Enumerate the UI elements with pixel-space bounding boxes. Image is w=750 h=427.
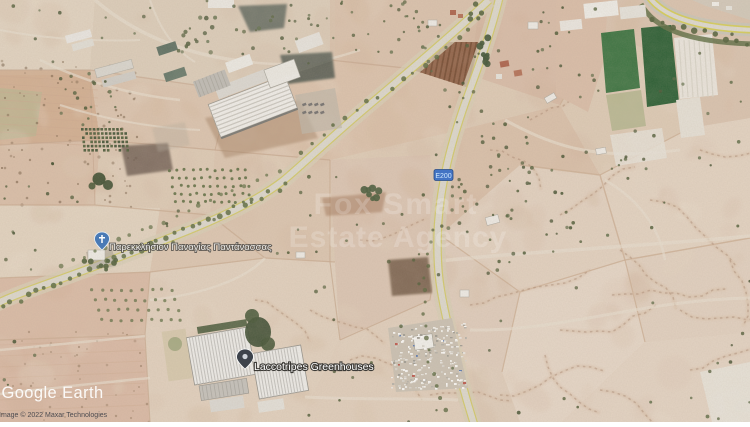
svg-text:Παρεκκλήσιον Παναγίας Παντάνασ: Παρεκκλήσιον Παναγίας Παντάνασσας <box>109 242 272 253</box>
svg-text:Google Earth: Google Earth <box>2 384 104 402</box>
svg-text:Laccotripes Greenhouses: Laccotripes Greenhouses <box>254 361 374 373</box>
svg-text:E200: E200 <box>435 173 451 180</box>
svg-text:Image © 2022 Maxar Technologie: Image © 2022 Maxar Technologies <box>0 411 108 419</box>
svg-text:Fox Smart: Fox Smart <box>314 188 479 221</box>
svg-text:Estate Agency: Estate Agency <box>289 221 508 254</box>
